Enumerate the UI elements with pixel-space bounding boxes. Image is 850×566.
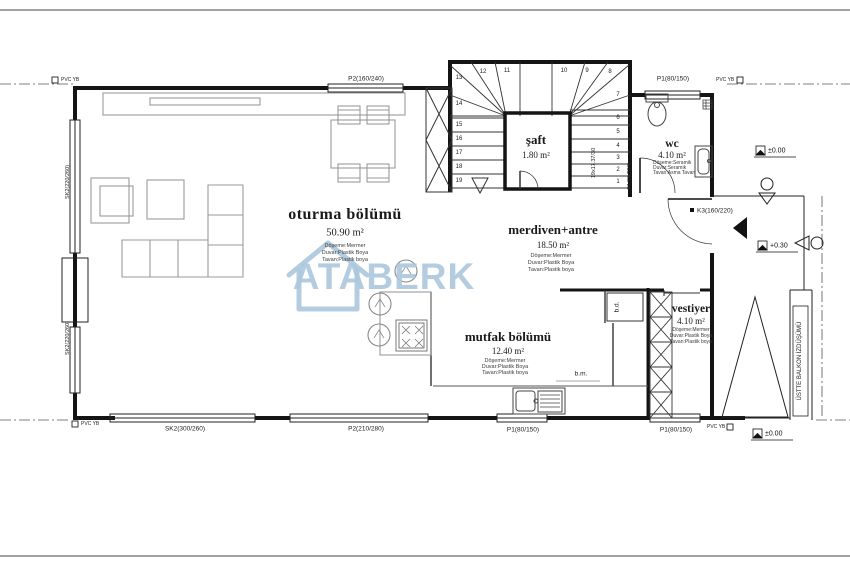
- stair-step-number: 4: [616, 143, 619, 149]
- fridge-label: b.d.: [614, 302, 621, 313]
- window-label-p2-bottom: P2(210/280): [348, 426, 384, 433]
- window-label-sk2-left-upper: SK2(220/260): [65, 165, 71, 199]
- floor-plan-sheet: ATABERK oturma bölümü 50.90 m² Döşeme:Me…: [0, 0, 850, 566]
- washbasin-icon: [695, 146, 712, 177]
- window-label-p1-top-right: P1(80/150): [657, 76, 689, 83]
- room-spec-floor: Döşeme:Mermer: [531, 253, 572, 259]
- windows: [62, 84, 700, 422]
- room-spec-ceiling: Tavan:Plastik boya: [670, 339, 712, 345]
- window-label-sk2-left-lower: SK2(220/260): [65, 321, 71, 355]
- stair-step-number: 12: [480, 69, 487, 75]
- pvc-marker-squares: [52, 77, 743, 430]
- stair-step-number: 11: [504, 68, 510, 74]
- room-area-saft: 1.80 m²: [522, 150, 550, 160]
- room-title-wc: wc: [665, 138, 678, 150]
- dishwasher-label: b.m.: [575, 371, 588, 378]
- stair-step-number: 6: [616, 115, 619, 121]
- room-title-mutfak: mutfak bölümü: [465, 329, 551, 345]
- stair-step-number: 5: [616, 129, 619, 135]
- level-label-bottom: ±0.00: [765, 431, 782, 438]
- shaft-door: [520, 171, 538, 189]
- level-label-top: ±0.00: [768, 148, 785, 155]
- room-title-merdiven: merdiven+antre: [508, 222, 597, 238]
- window-label-p1-bottom-right: P1(80/150): [660, 427, 692, 434]
- room-spec-ceiling: Tavan:Asma Tavan: [653, 170, 695, 176]
- level-marker-icons: [751, 146, 798, 440]
- stove-icon: [396, 320, 427, 351]
- door-label-k1: K1(90/220): [627, 162, 633, 189]
- stair-step-number: 10: [561, 68, 568, 74]
- stair-step-number: 2: [616, 167, 619, 173]
- entry-door: [668, 199, 712, 244]
- stair-step-number: 9: [585, 68, 588, 74]
- armchair: [91, 178, 133, 223]
- room-spec-ceiling: Tavan:Plastik boya: [528, 267, 574, 273]
- door-label-bullet: [690, 208, 694, 212]
- stair-step-number: 16: [456, 136, 463, 142]
- stair-step-number: 15: [456, 122, 463, 128]
- room-title-saft: şaft: [526, 132, 546, 148]
- balcony-projection-label: ÜSTTE BALKON İZDÜŞÜMÜ: [797, 321, 803, 400]
- room-area-mutfak: 12.40 m²: [492, 346, 524, 356]
- pvc-label-bottom-right: PVC YB: [707, 424, 725, 430]
- stair-step-number: 14: [456, 101, 463, 107]
- pvc-label-top-left: PVC YB: [61, 77, 79, 83]
- room-title-oturma: oturma bölümü: [288, 206, 402, 224]
- room-spec-wall: Duvar:Plastik Boya: [322, 250, 368, 256]
- fridge-icon: [607, 293, 643, 321]
- wardrobe-icon: [650, 292, 672, 418]
- room-area-merdiven: 18.50 m²: [537, 240, 569, 250]
- coffee-table: [147, 180, 184, 219]
- stair-step-number: 8: [608, 69, 611, 75]
- projection-lines: [0, 84, 850, 420]
- stairwell: [450, 62, 630, 193]
- watermark-brand: ATABERK: [293, 256, 475, 298]
- sink-icon: [513, 388, 565, 414]
- l-sofa: [122, 185, 243, 277]
- stair-step-number: 17: [456, 150, 463, 156]
- kitchen-counter: [433, 381, 648, 386]
- dining-set: [331, 106, 395, 182]
- pvc-label-bottom-left: PVC YB: [81, 421, 99, 427]
- room-area-wc: 4.10 m²: [658, 150, 686, 160]
- room-spec-wall: Duvar:Plastik Boya: [528, 260, 574, 266]
- door-label-k3: K3(160/220): [697, 208, 733, 215]
- room-spec-floor: Döşeme:Mermer: [325, 243, 366, 249]
- room-area-vestiyer: 4.10 m²: [677, 316, 705, 326]
- stair-step-number: 13: [456, 75, 463, 81]
- window-label-sk2-bottom: SK2(300/260): [165, 426, 205, 433]
- window-label-p1-bottom-mid: P1(80/150): [507, 427, 539, 434]
- level-label-entry: +0.30: [770, 243, 788, 250]
- entry-direction-arrow-icon: [733, 217, 747, 239]
- stair-step-number: 1: [616, 179, 619, 185]
- room-area-oturma: 50.90 m²: [326, 228, 364, 239]
- stair-calc-label: 19x17.37/30: [591, 148, 597, 178]
- stair-step-number: 3: [616, 155, 619, 161]
- downspout-icons: [759, 178, 823, 250]
- stair-step-number: 19: [456, 178, 463, 184]
- room-title-vestiyer: vestiyer: [672, 303, 710, 315]
- stair-step-number: 18: [456, 164, 463, 170]
- stair-step-number: 7: [616, 92, 619, 98]
- window-label-p2-top: P2(160/240): [348, 76, 384, 83]
- pvc-label-top-right: PVC YB: [716, 77, 734, 83]
- room-spec-ceiling: Tavan:Plastik boya: [322, 257, 368, 263]
- room-spec-ceiling: Tavan:Plastik boya: [482, 370, 528, 376]
